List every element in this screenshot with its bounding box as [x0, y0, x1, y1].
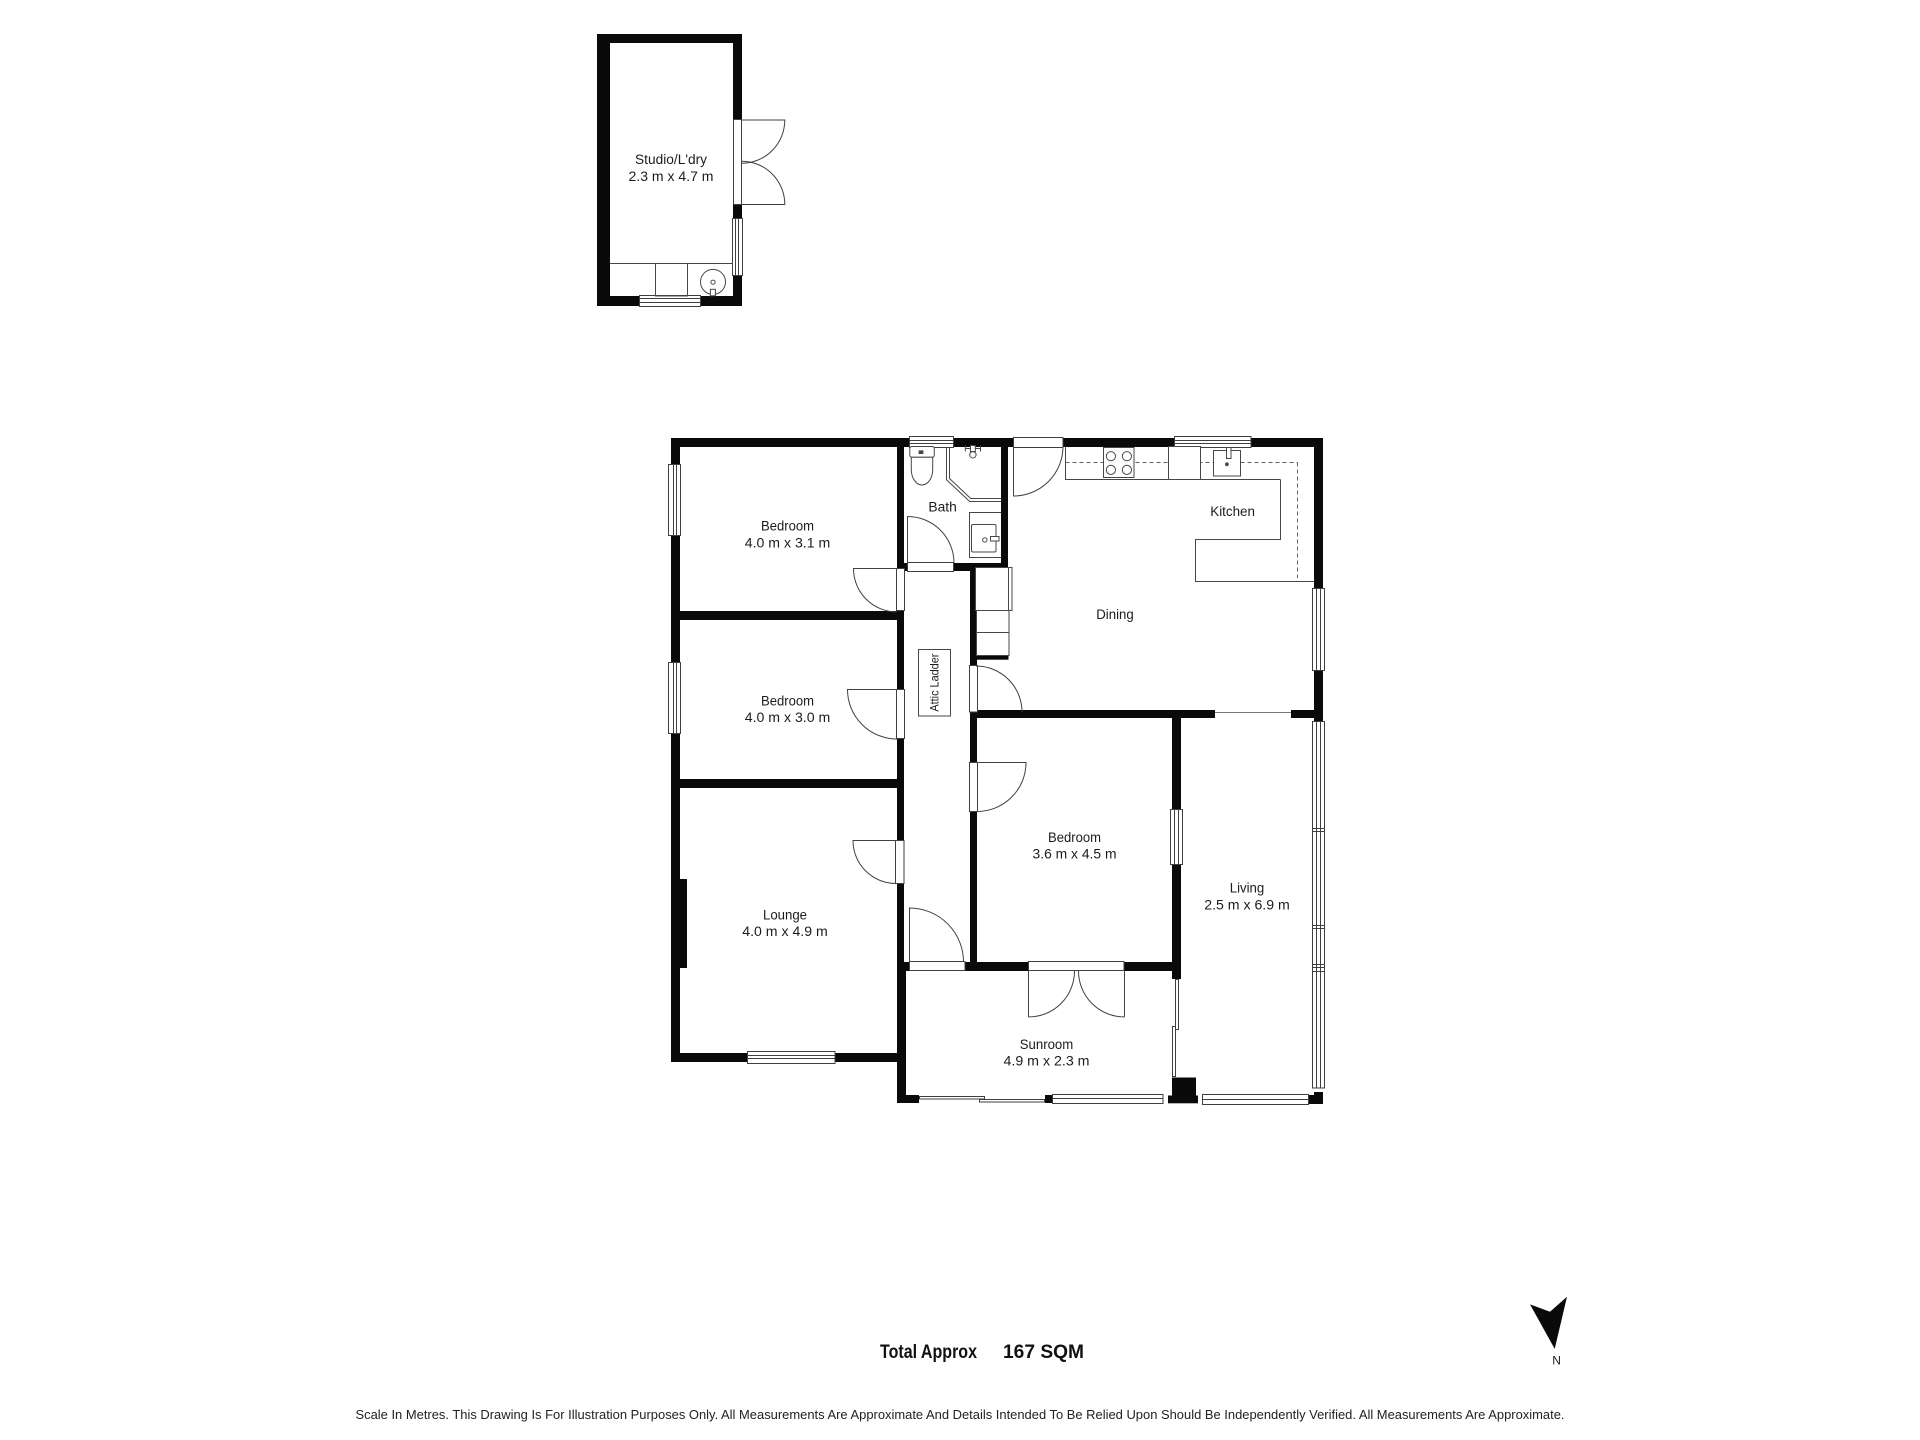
svg-text:4.0 m x 4.9 m: 4.0 m x 4.9 m — [742, 924, 828, 939]
svg-text:3.6 m x 4.5 m: 3.6 m x 4.5 m — [1033, 847, 1117, 862]
svg-text:2.3 m x 4.7 m: 2.3 m x 4.7 m — [629, 169, 714, 184]
svg-text:4.9 m x 2.3 m: 4.9 m x 2.3 m — [1004, 1053, 1090, 1068]
svg-text:Lounge: Lounge — [763, 908, 807, 923]
svg-text:N: N — [1552, 1354, 1561, 1368]
svg-text:Sunroom: Sunroom — [1020, 1037, 1074, 1052]
svg-text:Living: Living — [1230, 881, 1265, 896]
svg-text:167 SQM: 167 SQM — [1003, 1342, 1084, 1363]
svg-text:4.0 m x 3.0 m: 4.0 m x 3.0 m — [745, 710, 831, 725]
svg-text:Attic Ladder: Attic Ladder — [927, 654, 941, 712]
svg-text:4.0 m x 3.1 m: 4.0 m x 3.1 m — [745, 536, 831, 551]
svg-text:Bedroom: Bedroom — [761, 519, 814, 534]
svg-text:2.5 m x 6.9 m: 2.5 m x 6.9 m — [1204, 897, 1290, 912]
svg-text:Bath: Bath — [928, 499, 957, 514]
svg-text:Kitchen: Kitchen — [1210, 504, 1255, 519]
svg-text:Studio/L'dry: Studio/L'dry — [635, 152, 707, 167]
svg-text:Bedroom: Bedroom — [1048, 830, 1101, 845]
svg-text:Scale In Metres. This Drawing: Scale In Metres. This Drawing Is For Ill… — [356, 1407, 1565, 1422]
svg-text:Bedroom: Bedroom — [761, 693, 814, 708]
svg-text:Dining: Dining — [1096, 607, 1134, 622]
svg-text:Total Approx: Total Approx — [880, 1342, 977, 1363]
